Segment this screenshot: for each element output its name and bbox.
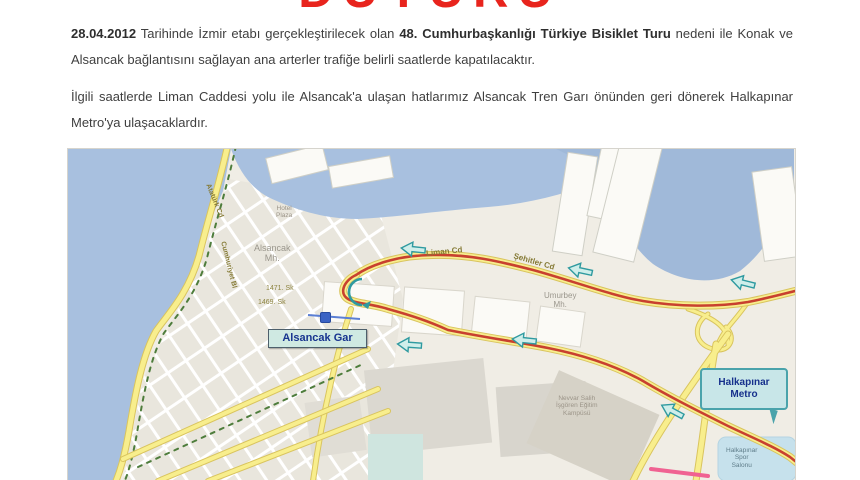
announcement-page: DUYURU 28.04.2012 Tarihinde İzmir etabı … (0, 0, 860, 480)
notice-paragraph-2: İlgili saatlerde Liman Caddesi yolu ile … (71, 84, 793, 136)
page-title: DUYURU (0, 0, 860, 19)
alsancak-gar-callout: Alsancak Gar (268, 329, 367, 348)
route-map-graphic (68, 149, 795, 480)
halkapinar-metro-callout: Halkapınar Metro (700, 368, 788, 410)
route-map: Liman Cd Şehitler Cd Atatürk Cd Cumhuriy… (67, 148, 796, 480)
notice-text-1: Tarihinde İzmir etabı gerçekleştirilecek… (136, 26, 399, 41)
halkapinar-metro-label: Halkapınar Metro (702, 377, 786, 402)
notice-paragraph-1: 28.04.2012 Tarihinde İzmir etabı gerçekl… (71, 21, 793, 73)
station-icon (320, 312, 331, 323)
notice-event-name: 48. Cumhurbaşkanlığı Türkiye Bisiklet Tu… (399, 26, 670, 41)
notice-date: 28.04.2012 (71, 26, 136, 41)
